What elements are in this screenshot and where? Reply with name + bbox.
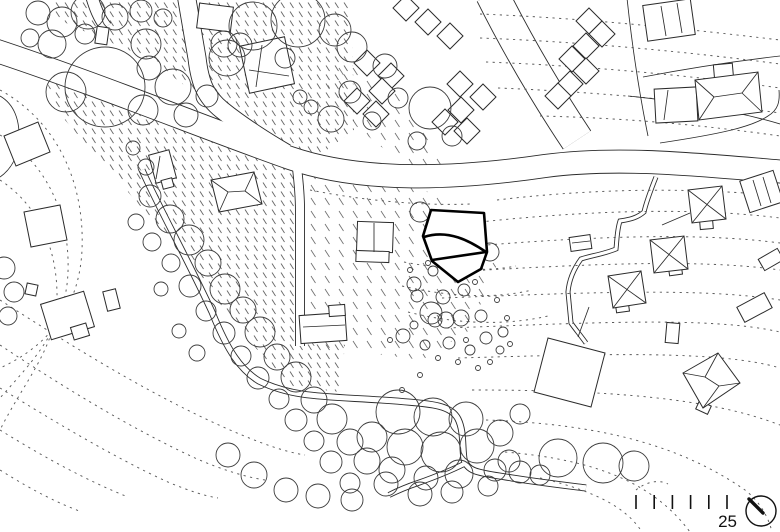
building-footprint	[356, 221, 393, 252]
building-footprint	[25, 283, 38, 296]
building-footprint	[197, 3, 234, 32]
building-footprint	[356, 250, 389, 262]
building-footprint	[695, 72, 762, 120]
scale-bar-label: 25	[718, 512, 737, 531]
building-footprint	[299, 312, 347, 343]
building-footprint	[329, 304, 346, 316]
building-footprint	[665, 322, 680, 343]
building-footprint	[95, 26, 109, 45]
building-footprint	[654, 87, 698, 123]
site-plan-canvas: 25	[0, 0, 780, 532]
site-plan-page: 25	[0, 0, 780, 532]
building-footprint	[643, 0, 696, 41]
building-footprint	[24, 205, 67, 247]
